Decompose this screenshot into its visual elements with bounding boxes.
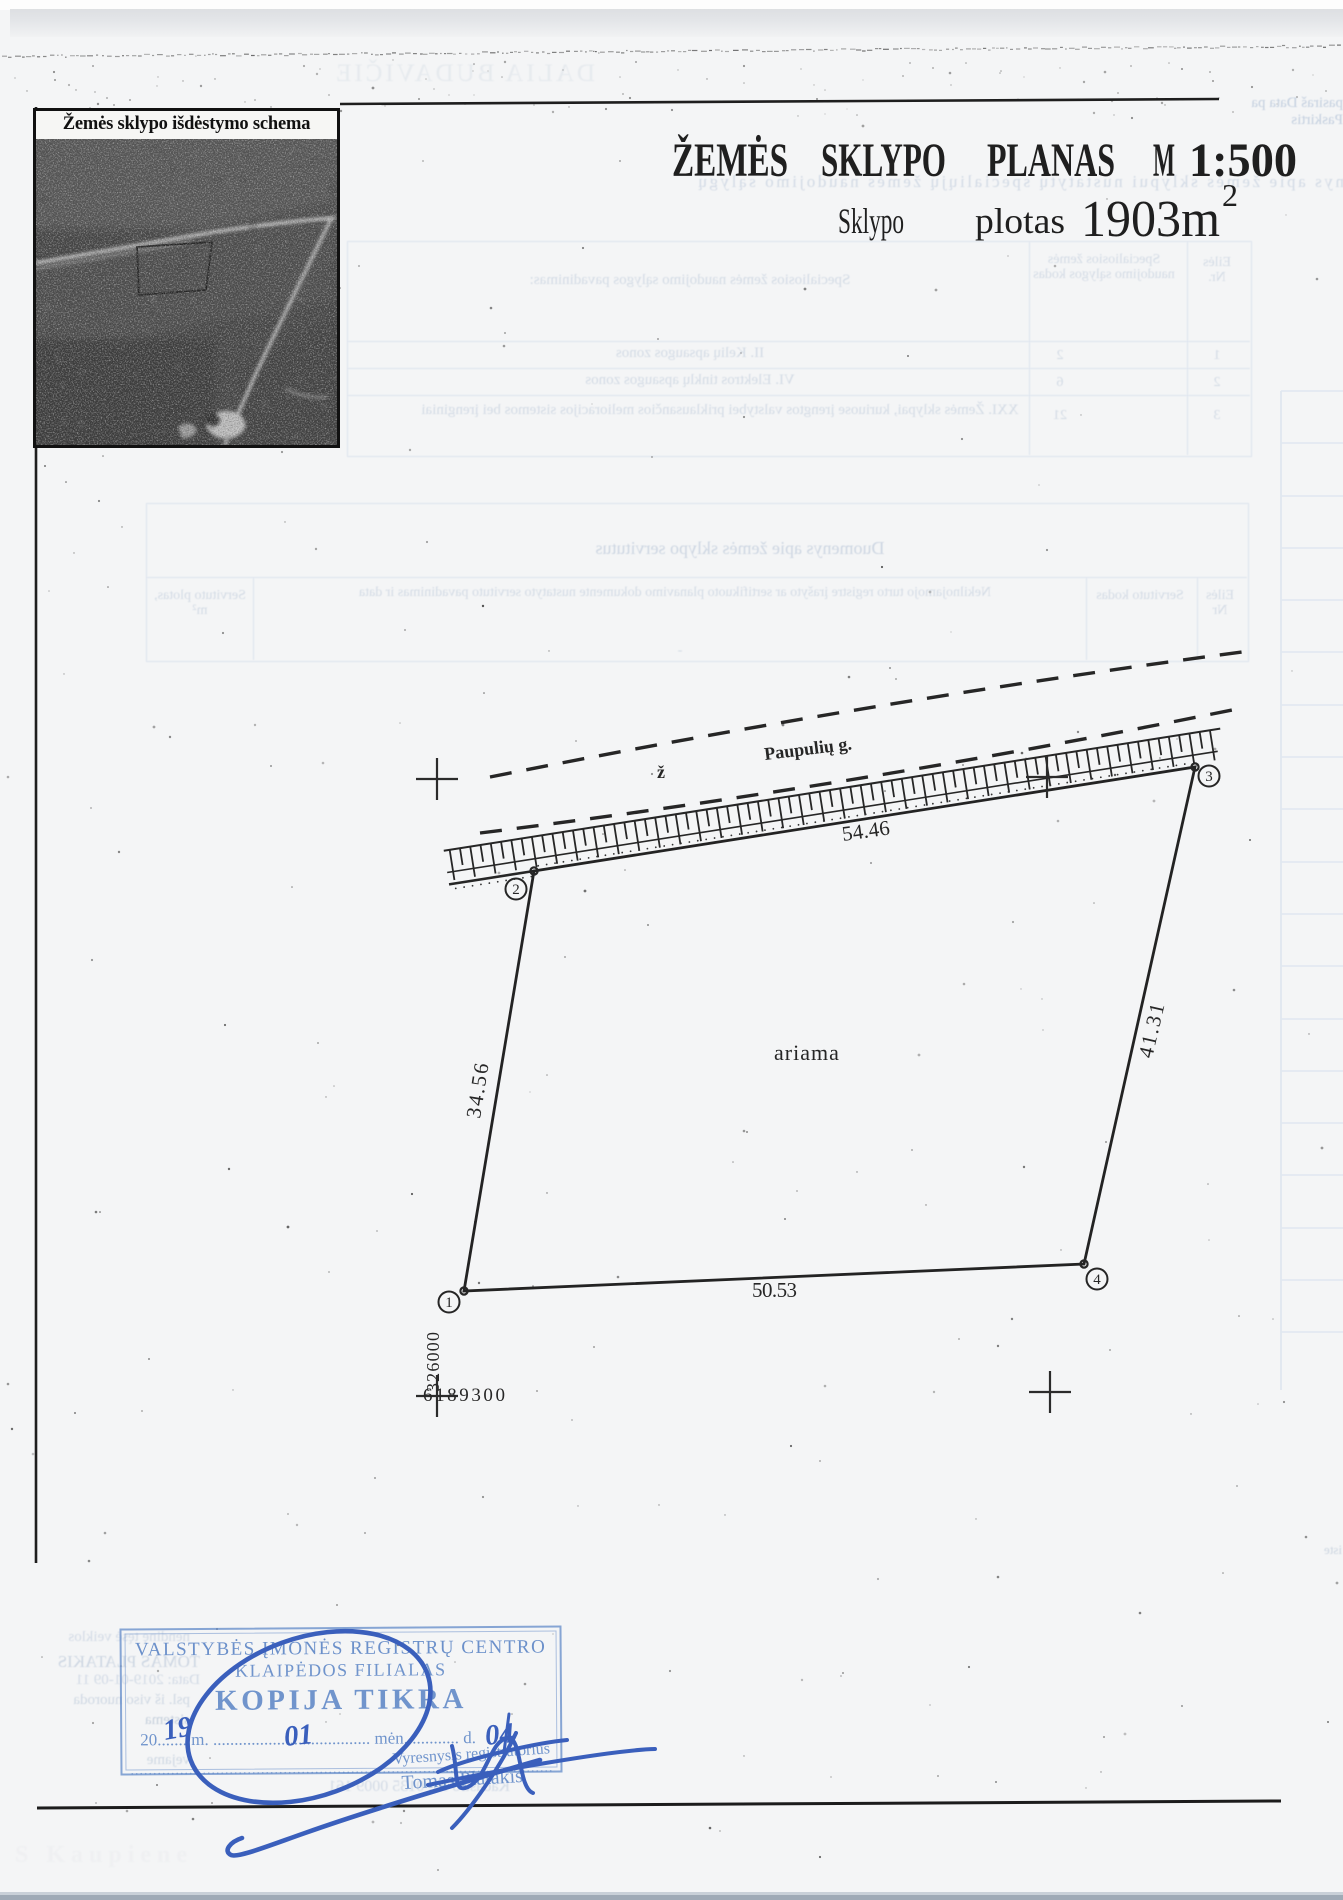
svg-text:ž: ž xyxy=(657,762,665,782)
svg-text:2: 2 xyxy=(512,882,520,898)
svg-text:Sklypo: Sklypo xyxy=(838,201,904,241)
svg-text:50.53: 50.53 xyxy=(752,1278,797,1302)
svg-text:01: 01 xyxy=(282,1718,314,1753)
svg-text:54.46: 54.46 xyxy=(840,816,891,846)
svg-text:4: 4 xyxy=(1093,1272,1101,1288)
svg-text:ŽEMĖS: ŽEMĖS xyxy=(672,133,788,187)
svg-text:ariama: ariama xyxy=(774,1040,840,1065)
svg-text:326000: 326000 xyxy=(423,1332,443,1392)
svg-text:M: M xyxy=(1153,134,1175,187)
svg-text:SKLYPO: SKLYPO xyxy=(821,134,946,187)
svg-text:1:500: 1:500 xyxy=(1189,134,1297,187)
svg-text:Paupulių g.: Paupulių g. xyxy=(763,733,853,764)
svg-text:34.56: 34.56 xyxy=(461,1059,494,1119)
svg-text:41.31: 41.31 xyxy=(1133,999,1169,1060)
svg-text:PLANAS: PLANAS xyxy=(987,134,1115,187)
svg-text:3: 3 xyxy=(1205,769,1213,785)
svg-text:1: 1 xyxy=(445,1295,453,1311)
svg-text:6189300: 6189300 xyxy=(423,1385,505,1406)
svg-text:1903m: 1903m xyxy=(1081,191,1220,248)
svg-text:2: 2 xyxy=(1222,177,1238,213)
svg-text:plotas: plotas xyxy=(975,201,1065,241)
